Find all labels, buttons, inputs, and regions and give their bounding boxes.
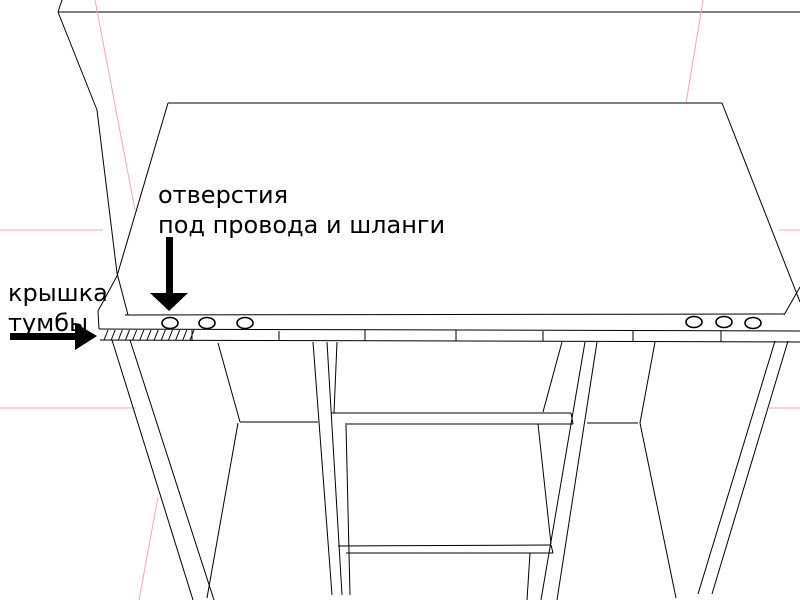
edge-hatch-tick [161,330,165,340]
drawing-line [58,0,62,12]
holes-annotation-arrow-down-icon-shaft [166,237,173,295]
axis-line [686,0,703,103]
drawing-line [338,545,551,546]
holes-annotation-arrow-down-icon [150,293,188,311]
drawing-line [722,103,800,302]
drawing-line [125,314,784,315]
wire-hole [199,318,215,329]
drawing-line [130,340,214,600]
wire-hole [745,318,761,329]
holes-label: отверстия под провода и шланги [158,180,445,240]
edge-hatch-tick [147,330,151,340]
edge-hatch-tick [126,330,130,340]
drawing-line [346,425,350,595]
drawing-line [334,342,337,413]
drawing-line [58,12,97,110]
edge-hatch-tick [154,330,158,340]
edge-hatch-tick [111,330,115,340]
holes-label-line1: отверстия [158,180,445,210]
sketchup-viewport: отверстия под провода и шланги крышка ту… [0,0,800,600]
cabinet-lid-label-line2: тумбы [8,308,108,338]
drawing-line [112,340,193,600]
drawing-line [640,423,676,598]
cad-drawing [0,0,800,600]
drawing-line [207,423,238,598]
wire-hole [162,318,178,329]
wire-hole [686,317,702,328]
cabinet-lid-label-line1: крышка [8,278,108,308]
edge-hatch-tick [176,330,180,340]
drawing-line [99,329,800,331]
drawing-line [117,273,128,315]
drawing-line [640,342,655,423]
wire-hole [716,317,732,328]
edge-hatch-tick [118,330,122,340]
edge-hatch-tick [183,330,187,340]
drawing-line [538,424,551,544]
edge-hatch-tick [140,330,144,340]
drawing-line [527,553,530,600]
drawing-line [100,340,800,342]
axis-line [95,0,135,210]
drawing-line [218,343,240,422]
drawing-line [551,545,553,553]
holes-label-line2: под провода и шланги [158,210,445,240]
edge-hatch-tick [133,330,137,340]
edge-hatch-tick [169,330,173,340]
drawing-line [543,342,562,412]
drawing-line [784,287,800,315]
drawing-line [712,341,788,594]
wire-hole [237,318,253,329]
drawing-line [698,341,775,594]
axis-line [139,497,158,600]
cabinet-lid-label: крышка тумбы [8,278,108,338]
drawing-line [97,110,117,273]
